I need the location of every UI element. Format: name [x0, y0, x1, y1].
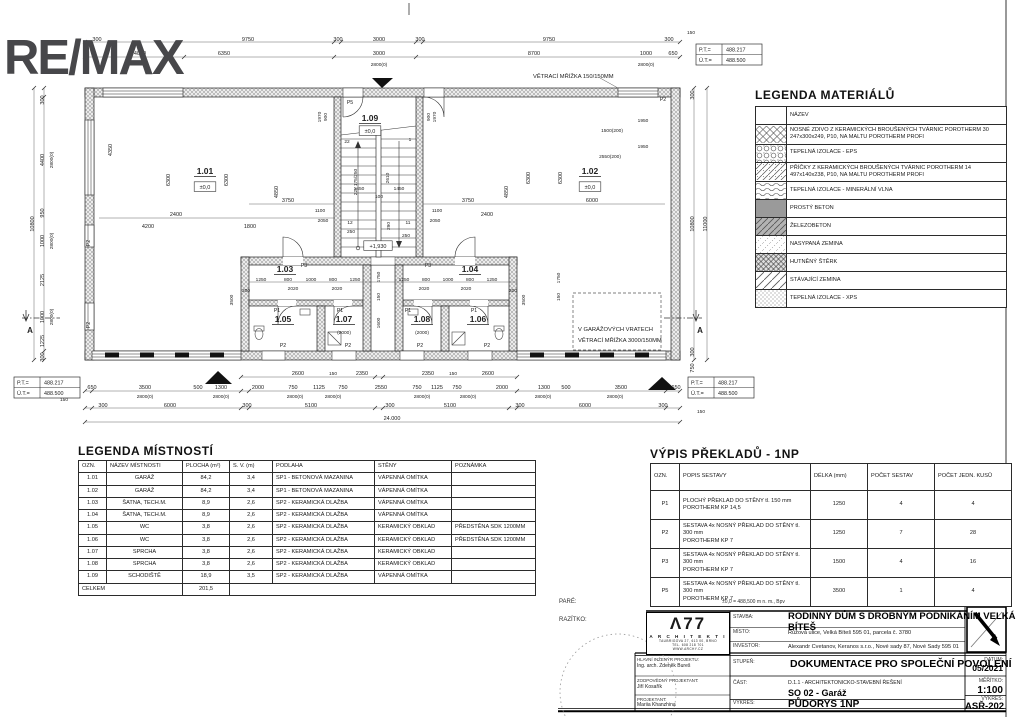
- dim-label: 11: [406, 220, 411, 226]
- column-header: OZN.: [651, 464, 680, 491]
- cell: VÁPENNÁ OMÍTKA: [375, 510, 452, 522]
- material-swatch: [756, 290, 787, 308]
- cell: 2,6: [230, 497, 273, 509]
- lintel-mark: P5: [347, 100, 353, 106]
- cell: SP2 - KERAMICKÁ DLAŽBA: [273, 497, 375, 509]
- lintel-sets-cell: 4: [868, 491, 935, 520]
- cell: 3,8: [183, 534, 230, 546]
- a77-logo-web: WWW.ARCHY.CZ: [647, 647, 729, 651]
- dim-label: 1125: [431, 385, 443, 391]
- dim-label: 200: [242, 288, 250, 294]
- lintel-length-cell: 1250: [811, 520, 868, 549]
- material-name: HUTNĚNÝ ŠTĚRK: [787, 254, 1007, 272]
- cell: 1.09: [79, 571, 107, 583]
- cell: 8,9: [183, 497, 230, 509]
- cell: ŠATNA, TECH.M.: [107, 497, 183, 509]
- room-number: 1.05: [275, 314, 292, 324]
- lintel-mark: P2: [86, 322, 92, 328]
- dim-label: 1100: [315, 208, 326, 214]
- total-label: CELKEM: [79, 583, 183, 595]
- walls: [85, 88, 680, 360]
- table-row: 1.06WC3,82,6SP2 - KERAMICKÁ DLAŽBAKERAMI…: [79, 534, 536, 546]
- dim-label: 100: [375, 194, 383, 200]
- dim-label: +1,930: [370, 244, 387, 250]
- a77-logo-mark: Λ77: [647, 615, 729, 634]
- materials-legend-table: NÁZEVNOSNÉ ZDIVO Z KERAMICKÝCH BROUŠENÝC…: [755, 106, 1007, 308]
- dim-label: 300: [690, 90, 696, 99]
- dim-label: 300: [333, 37, 342, 43]
- dim-label: 1970: [432, 111, 438, 122]
- a77-logo-name: A R C H I T E K T I: [647, 634, 729, 639]
- dim-label: 650: [668, 51, 677, 57]
- dim-label: 200: [509, 288, 517, 294]
- cast-label: ČÁST:: [733, 681, 747, 687]
- room-number: 1.01: [197, 166, 214, 176]
- cell: 1.02: [79, 485, 107, 497]
- dim-label: 3500: [521, 294, 527, 305]
- table-row: NOSNÉ ZDIVO Z KERAMICKÝCH BROUŠENÝCH TVÁ…: [756, 125, 1007, 145]
- dim-label: 300: [664, 37, 673, 43]
- cell: 3,5: [230, 571, 273, 583]
- cell: SP2 - KERAMICKÁ DLAŽBA: [273, 559, 375, 571]
- total-area: 201,5: [183, 583, 230, 595]
- dim-label: 2800(0): [49, 151, 55, 168]
- dim-label: 1750: [556, 272, 562, 283]
- datum-value: 05/2021: [965, 664, 1003, 674]
- elevation-value: P.T.=: [699, 48, 711, 54]
- cell: SP2 - KERAMICKÁ DLAŽBA: [273, 571, 375, 583]
- swatch-header-cell: [756, 107, 787, 125]
- material-name: NOSNÉ ZDIVO Z KERAMICKÝCH BROUŠENÝCH TVÁ…: [787, 125, 1007, 145]
- investor-label: INVESTOR:: [733, 644, 760, 650]
- material-name: PŘÍČKY Z KERAMICKÝCH BROUŠENÝCH TVÁRNIC …: [787, 162, 1007, 182]
- dim-label: 6000: [164, 403, 176, 409]
- cell: SP1 - BETONOVÁ MAZANINA: [273, 485, 375, 497]
- cell: [452, 559, 536, 571]
- dim-label: 2000: [496, 385, 508, 391]
- material-name: TEPELNÁ IZOLACE - MINERÁLNÍ VLNA: [787, 182, 1007, 200]
- lintel-mark: P2: [280, 343, 286, 349]
- stupen-label: STUPEŇ:: [733, 660, 755, 666]
- column-header: POČET JEDN. KUSŮ: [935, 464, 1012, 491]
- dim-label: 2400: [481, 212, 493, 218]
- material-swatch: [756, 125, 787, 145]
- table-row: 1.08SPRCHA3,82,6SP2 - KERAMICKÁ DLAŽBAKE…: [79, 559, 536, 571]
- dim-label: 2800(0): [137, 394, 154, 400]
- table-row: TEPELNÁ IZOLACE - MINERÁLNÍ VLNA: [756, 182, 1007, 200]
- dim-label: 300: [98, 403, 107, 409]
- pare-label: PARÉ:: [559, 599, 577, 606]
- lintel-sets-cell: 7: [868, 520, 935, 549]
- table-row: P3SESTAVA 4x NOSNÝ PŘEKLAD DO STĚNY tl. …: [651, 549, 1012, 578]
- cell: 2,6: [230, 546, 273, 558]
- column-header: PLOCHA (m²): [183, 461, 230, 473]
- dim-label: A: [697, 326, 703, 335]
- cell: [452, 497, 536, 509]
- cell: 2,6: [230, 534, 273, 546]
- dim-label: 900: [323, 113, 329, 121]
- dim-label: VĚTRACÍ MŘÍŽKA 150/150MM: [533, 72, 614, 80]
- lintel-sets-cell: 1: [868, 578, 935, 607]
- dim-label: 3500: [139, 385, 151, 391]
- dim-label: 3000: [373, 51, 385, 57]
- dim-label: 300: [515, 403, 524, 409]
- dim-label: 2350: [356, 371, 368, 377]
- dim-label: 150: [556, 293, 562, 301]
- dim-label: 2800(0): [607, 394, 624, 400]
- dim-label: 22: [344, 139, 350, 145]
- dim-label: 1100: [432, 208, 443, 214]
- level-note: ±0,0 = 488,500 m n. m., Bpv: [722, 600, 785, 606]
- cell: 1.07: [79, 546, 107, 558]
- table-row: 1.02GARÁŽ84,23,4SP1 - BETONOVÁ MAZANINAV…: [79, 485, 536, 497]
- lintel-mark-cell: P5: [651, 578, 680, 607]
- dim-label: 2050: [318, 218, 329, 224]
- lintel-length-cell: 1250: [811, 491, 868, 520]
- dim-label: 1000: [40, 311, 46, 323]
- cell: [452, 510, 536, 522]
- table-row: 1.07SPRCHA3,82,6SP2 - KERAMICKÁ DLAŽBAKE…: [79, 546, 536, 558]
- cell: KERAMICKÝ OBKLAD: [375, 534, 452, 546]
- column-header: DÉLKA (mm): [811, 464, 868, 491]
- dim-label: 1000: [640, 51, 652, 57]
- cell: ŠATNA, TECH.M.: [107, 510, 183, 522]
- lintel-mark: P2: [86, 240, 92, 246]
- dim-label: 2350: [422, 371, 434, 377]
- vykres-label: VÝKRES:: [733, 701, 755, 707]
- dim-label: 2610: [385, 172, 391, 183]
- dim-label: 250: [402, 233, 410, 239]
- dim-label: 4350: [108, 144, 114, 156]
- dim-label: A: [27, 326, 33, 335]
- materials-legend-title: LEGENDA MATERIÁLŮ: [755, 88, 895, 102]
- dim-label: 6300: [224, 174, 230, 186]
- cell: KERAMICKÝ OBKLAD: [375, 522, 452, 534]
- lintel-mark: P3: [425, 263, 431, 269]
- dim-label: 10800: [30, 216, 36, 231]
- cell: SP2 - KERAMICKÁ DLAŽBA: [273, 522, 375, 534]
- column-header: POPIS SESTAVY: [680, 464, 811, 491]
- dim-label: 300: [415, 37, 424, 43]
- dim-label: 2125: [40, 274, 46, 286]
- dim-label: 1: [409, 137, 412, 143]
- cell: VÁPENNÁ OMÍTKA: [375, 571, 452, 583]
- table-row: OZN.NÁZEV MÍSTNOSTIPLOCHA (m²)S. V. (m)P…: [79, 461, 536, 473]
- dim-label: ±0,0: [200, 185, 211, 191]
- dim-label: 1000: [306, 277, 317, 283]
- table-row: ŽELEZOBETON: [756, 218, 1007, 236]
- dim-label: 150: [329, 371, 337, 377]
- designer-name: Mariia Khanzhina: [637, 703, 676, 709]
- elevation-box: P.T.=488.217Ú.T.=488.500: [14, 377, 80, 398]
- column-header: PODLAHA: [273, 461, 375, 473]
- lintel-schedule-title: VÝPIS PŘEKLADŮ - 1NP: [650, 447, 799, 461]
- dim-label: 2600: [482, 371, 494, 377]
- elevation-value: 488.500: [718, 391, 738, 397]
- dim-label: 12: [347, 220, 353, 226]
- room-number: 1.04: [462, 264, 479, 274]
- lintel-mark: P2: [484, 343, 490, 349]
- dim-label: 10800: [690, 216, 696, 231]
- room-number: 1.03: [277, 264, 294, 274]
- table-row: P5SESTAVA 4x NOSNÝ PŘEKLAD DO STĚNY tl. …: [651, 578, 1012, 607]
- material-swatch: [756, 236, 787, 254]
- investor-value: Alexandr Cvetanov, Keranos s.r.o., Nové …: [788, 644, 959, 650]
- elevation-value: P.T.=: [691, 381, 703, 387]
- dim-label: 3750: [282, 198, 294, 204]
- table-row: P1PLOCHÝ PŘEKLAD DO STĚNY tl. 150 mm POR…: [651, 491, 1012, 520]
- table-row: PŘÍČKY Z KERAMICKÝCH BROUŠENÝCH TVÁRNIC …: [756, 162, 1007, 182]
- dim-label: 800: [466, 277, 474, 283]
- dim-label: 11000: [703, 217, 709, 232]
- column-header: POZNÁMKA: [452, 461, 536, 473]
- dim-label: 2550: [375, 385, 387, 391]
- dim-label: 2050: [430, 218, 441, 224]
- dim-label: 2800(0): [287, 394, 304, 400]
- dim-label: 3500: [615, 385, 627, 391]
- door-swings: [278, 97, 488, 324]
- elevation-value: Ú.T.=: [699, 57, 712, 64]
- dim-label: 2020: [288, 286, 299, 292]
- lintel-pieces-cell: 4: [935, 578, 1012, 607]
- material-swatch: [756, 182, 787, 200]
- responsible-designer-name: Jiří Kosařík: [637, 685, 662, 691]
- table-row: 1.05WC3,82,6SP2 - KERAMICKÁ DLAŽBAKERAMI…: [79, 522, 536, 534]
- dim-label: 2800(0): [213, 394, 230, 400]
- cell: SP2 - KERAMICKÁ DLAŽBA: [273, 510, 375, 522]
- cell: 2,6: [230, 510, 273, 522]
- cell: SP2 - KERAMICKÁ DLAŽBA: [273, 546, 375, 558]
- elevation-value: 488.500: [726, 58, 746, 64]
- dim-label: 6000: [579, 403, 591, 409]
- table-row: HUTNĚNÝ ŠTĚRK: [756, 254, 1007, 272]
- cell: [452, 473, 536, 485]
- rooms-legend-table: OZN.NÁZEV MÍSTNOSTIPLOCHA (m²)S. V. (m)P…: [78, 460, 536, 596]
- lintel-mark: P1: [337, 308, 343, 314]
- cell: 3,8: [183, 546, 230, 558]
- cell: 1.05: [79, 522, 107, 534]
- dim-label: 1450: [354, 186, 365, 192]
- dim-label: 6000: [586, 198, 598, 204]
- material-swatch: [756, 144, 787, 162]
- dim-label: 1450: [394, 186, 405, 192]
- material-name: ŽELEZOBETON: [787, 218, 1007, 236]
- total-row: CELKEM201,5: [79, 583, 536, 595]
- dim-label: 800: [422, 277, 430, 283]
- dim-label: 6350: [218, 51, 230, 57]
- material-name: TEPELNÁ IZOLACE - XPS: [787, 290, 1007, 308]
- dim-label: 750: [412, 385, 421, 391]
- dim-label: 2800(0): [535, 394, 552, 400]
- cell: WC: [107, 534, 183, 546]
- dimension-lines: [32, 40, 709, 424]
- dim-label: 8700: [528, 51, 540, 57]
- dim-label: 3000: [373, 37, 385, 43]
- lintel-mark: P1: [274, 308, 280, 314]
- elevation-value: Ú.T.=: [17, 390, 30, 397]
- dim-label: 9750: [242, 37, 254, 43]
- dim-label: 1000: [443, 277, 454, 283]
- dim-label: 750: [338, 385, 347, 391]
- dim-label: 5100: [305, 403, 317, 409]
- lintel-mark: P2: [417, 343, 423, 349]
- dim-label: 800: [284, 277, 292, 283]
- dim-label: 9750: [543, 37, 555, 43]
- razitko-label: RAZÍTKO:: [559, 617, 587, 624]
- lintel-desc-cell: SESTAVA 4x NOSNÝ PŘEKLAD DO STĚNY tl. 30…: [680, 520, 811, 549]
- cell: 3,4: [230, 485, 273, 497]
- room-number: 1.08: [414, 314, 431, 324]
- stavba-label: STAVBA:: [733, 615, 753, 621]
- lintel-mark: P1: [405, 308, 411, 314]
- dim-label: 3750: [462, 198, 474, 204]
- dim-label: 1250: [399, 277, 410, 283]
- cell: VÁPENNÁ OMÍTKA: [375, 497, 452, 509]
- cell: SPRCHA: [107, 546, 183, 558]
- dim-label: 1800: [244, 224, 256, 230]
- elevation-value: 488.217: [726, 48, 746, 54]
- material-name: STÁVAJÍCÍ ZEMINA: [787, 272, 1007, 290]
- dim-label: 1000: [40, 235, 46, 247]
- room-number: 1.02: [582, 166, 599, 176]
- elevation-value: P.T.=: [17, 381, 29, 387]
- dim-label: 950: [40, 208, 46, 217]
- dim-label: 300: [690, 347, 696, 356]
- material-swatch: [756, 272, 787, 290]
- elevation-box: P.T.=488.217Ú.T.=488.500: [688, 377, 754, 398]
- lintel-mark-cell: P1: [651, 491, 680, 520]
- responsible-designer-label: ZODPOVĚDNÝ PROJEKTANT:: [637, 678, 698, 683]
- table-row: TEPELNÁ IZOLACE - EPS: [756, 144, 1007, 162]
- dim-label: 1300: [215, 385, 227, 391]
- elevation-value: 488.217: [44, 381, 64, 387]
- dim-label: 2020: [332, 286, 343, 292]
- dim-label: 300: [242, 403, 251, 409]
- cell: GARÁŽ: [107, 485, 183, 497]
- elevation-value: 488.500: [44, 391, 64, 397]
- cell: GARÁŽ: [107, 473, 183, 485]
- cell: [230, 583, 536, 595]
- table-row: TEPELNÁ IZOLACE - XPS: [756, 290, 1007, 308]
- cell: KERAMICKÝ OBKLAD: [375, 546, 452, 558]
- table-row: 1.03ŠATNA, TECH.M.8,92,6SP2 - KERAMICKÁ …: [79, 497, 536, 509]
- cell: 1.04: [79, 510, 107, 522]
- dim-label: 1950: [638, 118, 649, 124]
- cell: PŘEDSTĚNA SDK 1200MM: [452, 522, 536, 534]
- cell: 1.03: [79, 497, 107, 509]
- dim-label: 2800(0): [371, 62, 388, 68]
- room-number: 1.09: [362, 113, 379, 123]
- dim-label: 2550(200): [599, 154, 621, 160]
- dim-label: 1300: [538, 385, 550, 391]
- dim-label: VĚTRACÍ MŘÍŽKA 3000/150MM: [578, 336, 662, 344]
- dim-label: 2800(0): [325, 394, 342, 400]
- dim-label: 650: [671, 385, 680, 391]
- material-name: NASYPANÁ ZEMINA: [787, 236, 1007, 254]
- dim-label: (2000): [415, 330, 429, 336]
- dim-label: 290: [386, 222, 392, 230]
- cell: 3,8: [183, 522, 230, 534]
- table-row: OZN.POPIS SESTAVYDÉLKA (mm)POČET SESTAVP…: [651, 464, 1012, 491]
- dim-label: 1250: [350, 277, 361, 283]
- lintel-desc-cell: SESTAVA 4x NOSNÝ PŘEKLAD DO STĚNY tl. 30…: [680, 549, 811, 578]
- dim-label: 300: [658, 403, 667, 409]
- lintel-mark: P2: [660, 97, 666, 103]
- dim-label: 2000: [252, 385, 264, 391]
- cast-value-line1: D.1.1 - ARCHITEKTONICKO-STAVEBNÍ ŘEŠENÍ: [788, 681, 902, 687]
- lintel-length-cell: 3500: [811, 578, 868, 607]
- lintel-pieces-cell: 28: [935, 520, 1012, 549]
- dim-label: 1250: [256, 277, 267, 283]
- table-row: 1.04ŠATNA, TECH.M.8,92,6SP2 - KERAMICKÁ …: [79, 510, 536, 522]
- cell: [452, 571, 536, 583]
- dim-label: 500: [561, 385, 570, 391]
- chief-engineer-name: Ing. arch. Zdeněk Bureš: [637, 664, 690, 670]
- material-swatch: [756, 162, 787, 182]
- dim-label: 2800(0): [638, 62, 655, 68]
- elevation-box: P.T.=488.217Ú.T.=488.500: [696, 44, 762, 65]
- cell: 84,2: [183, 473, 230, 485]
- cell: 84,2: [183, 485, 230, 497]
- room-number: 1.06: [470, 314, 487, 324]
- dim-label: 2800(0): [460, 394, 477, 400]
- dim-label: 1600: [376, 317, 382, 328]
- lintel-desc-cell: PLOCHÝ PŘEKLAD DO STĚNY tl. 150 mm POROT…: [680, 491, 811, 520]
- misto-value: Růžová ulice, Velká Bíteš 595 01, parcel…: [788, 630, 911, 636]
- lintel-length-cell: 1500: [811, 549, 868, 578]
- dim-label: 6300: [166, 174, 172, 186]
- dim-label: 1225: [40, 335, 46, 347]
- dim-label: 2800(0): [49, 232, 55, 249]
- dim-label: 1500(200): [601, 128, 623, 134]
- dim-label: 750: [288, 385, 297, 391]
- rooms-legend-title: LEGENDA MÍSTNOSTÍ: [78, 444, 213, 458]
- dim-label: 750: [452, 385, 461, 391]
- dim-label: 24.000: [384, 416, 401, 422]
- lintel-mark: P2: [345, 343, 351, 349]
- dim-label: 5100: [444, 403, 456, 409]
- lintel-pieces-cell: 16: [935, 549, 1012, 578]
- dim-label: 1125: [313, 385, 325, 391]
- cell: SCHODIŠTĚ: [107, 571, 183, 583]
- dim-label: 1750: [376, 271, 382, 282]
- lintel-mark-cell: P3: [651, 549, 680, 578]
- dim-label: 150: [687, 30, 695, 36]
- cell: [452, 485, 536, 497]
- dim-label: 6300: [526, 172, 532, 184]
- table-row: NÁZEV: [756, 107, 1007, 125]
- dim-label: 150: [697, 409, 705, 415]
- misto-label: MÍSTO:: [733, 630, 750, 636]
- drawing-sheet: 3009750300300030097503001504000635030008…: [0, 0, 1024, 717]
- cell: SP2 - KERAMICKÁ DLAŽBA: [273, 534, 375, 546]
- elevation-value: Ú.T.=: [691, 390, 704, 397]
- cell: 1.08: [79, 559, 107, 571]
- dim-label: 2400: [170, 212, 182, 218]
- material-swatch: [756, 200, 787, 218]
- dim-label: 750: [690, 363, 696, 372]
- lintel-schedule-table: OZN.POPIS SESTAVYDÉLKA (mm)POČET SESTAVP…: [650, 463, 1012, 607]
- dim-label: 500: [193, 385, 202, 391]
- dim-label: 4400: [40, 154, 46, 166]
- cell: SP1 - BETONOVÁ MAZANINA: [273, 473, 375, 485]
- cell: 3,8: [183, 559, 230, 571]
- dim-label: (2000): [337, 330, 351, 336]
- table-row: PROSTÝ BETON: [756, 200, 1007, 218]
- cell: 2,6: [230, 559, 273, 571]
- cell: [452, 546, 536, 558]
- dim-label: 4200: [142, 224, 154, 230]
